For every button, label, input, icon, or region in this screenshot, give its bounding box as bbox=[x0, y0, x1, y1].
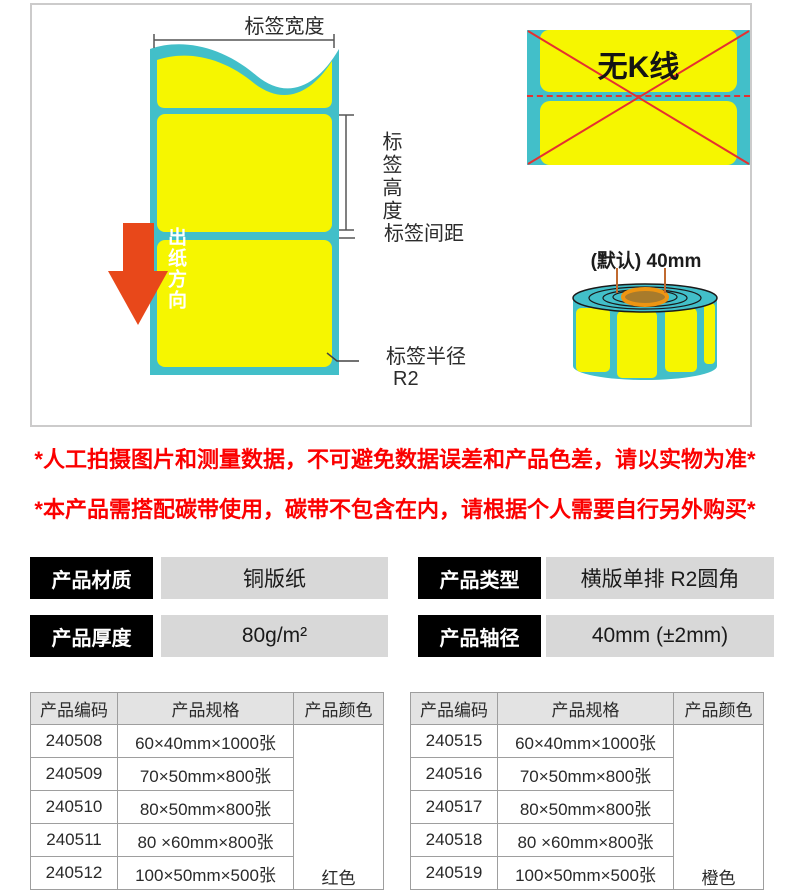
warning-line-1: *人工拍摄图片和测量数据，不可避免数据误差和产品色差，请以实物为准* bbox=[0, 442, 790, 474]
product-color: 红色 bbox=[294, 725, 384, 890]
product-code: 240515 bbox=[411, 725, 498, 758]
product-detail-page: { "diagram": { "label_width": "标签宽度", "l… bbox=[0, 0, 790, 868]
product-code: 240519 bbox=[411, 857, 498, 890]
col-header-spec: 产品规格 bbox=[118, 693, 294, 725]
product-color: 橙色 bbox=[674, 725, 764, 890]
no-k-line-illustration: 无K线 bbox=[527, 30, 750, 165]
product-code: 240512 bbox=[31, 857, 118, 890]
label-width-caption: 标签宽度 bbox=[177, 16, 392, 38]
attr-core-label: 产品轴径 bbox=[418, 615, 541, 657]
product-spec: 80×50mm×800张 bbox=[498, 791, 674, 824]
attr-material-value: 铜版纸 bbox=[161, 557, 388, 599]
label-radius-r2-caption: R2 bbox=[393, 368, 419, 390]
table-row: 240508 60×40mm×1000张 红色 bbox=[31, 725, 384, 758]
col-header-color: 产品颜色 bbox=[294, 693, 384, 725]
product-code: 240509 bbox=[31, 758, 118, 791]
col-header-code: 产品编码 bbox=[411, 693, 498, 725]
product-spec: 70×50mm×800张 bbox=[498, 758, 674, 791]
product-spec: 60×40mm×1000张 bbox=[498, 725, 674, 758]
label-height-caption: 标签高度 bbox=[379, 131, 401, 223]
product-code: 240508 bbox=[31, 725, 118, 758]
product-spec: 100×50mm×500张 bbox=[498, 857, 674, 890]
label-strip-illustration bbox=[147, 32, 362, 382]
attr-core-value: 40mm (±2mm) bbox=[546, 615, 774, 657]
table-header-row: 产品编码 产品规格 产品颜色 bbox=[31, 693, 384, 725]
product-code: 240517 bbox=[411, 791, 498, 824]
warning-line-2: *本产品需搭配碳带使用，碳带不包含在内，请根据个人需要自行另外购买* bbox=[0, 492, 790, 524]
attr-material-label: 产品材质 bbox=[30, 557, 153, 599]
product-spec: 80 ×60mm×800张 bbox=[118, 824, 294, 857]
product-spec: 70×50mm×800张 bbox=[118, 758, 294, 791]
col-header-color: 产品颜色 bbox=[674, 693, 764, 725]
table-row: 240515 60×40mm×1000张 橙色 bbox=[411, 725, 764, 758]
product-table-red: 产品编码 产品规格 产品颜色 240508 60×40mm×1000张 红色 2… bbox=[30, 692, 384, 890]
product-spec: 60×40mm×1000张 bbox=[118, 725, 294, 758]
product-spec: 80 ×60mm×800张 bbox=[498, 824, 674, 857]
product-code: 240510 bbox=[31, 791, 118, 824]
col-header-spec: 产品规格 bbox=[498, 693, 674, 725]
label-roll-illustration bbox=[570, 268, 722, 398]
label-radius-caption: 标签半径 bbox=[386, 346, 466, 368]
attr-type-label: 产品类型 bbox=[418, 557, 541, 599]
table-header-row: 产品编码 产品规格 产品颜色 bbox=[411, 693, 764, 725]
label-gap-caption: 标签间距 bbox=[384, 223, 464, 245]
no-k-line-caption: 无K线 bbox=[527, 42, 750, 86]
product-spec: 100×50mm×500张 bbox=[118, 857, 294, 890]
paper-direction-label: 出纸方向 bbox=[128, 227, 189, 311]
product-code: 240518 bbox=[411, 824, 498, 857]
attr-type-value: 横版单排 R2圆角 bbox=[546, 557, 774, 599]
product-code: 240511 bbox=[31, 824, 118, 857]
product-code: 240516 bbox=[411, 758, 498, 791]
product-spec: 80×50mm×800张 bbox=[118, 791, 294, 824]
attr-thickness-label: 产品厚度 bbox=[30, 615, 153, 657]
paper-direction-arrow: 出纸方向 bbox=[108, 223, 169, 325]
col-header-code: 产品编码 bbox=[31, 693, 118, 725]
product-table-orange: 产品编码 产品规格 产品颜色 240515 60×40mm×1000张 橙色 2… bbox=[410, 692, 764, 890]
label-spec-diagram: 标签宽度 标签高度 标签间距 标签半径 R2 出纸方向 无K线 (默认) 40m… bbox=[30, 3, 752, 427]
attr-thickness-value: 80g/m² bbox=[161, 615, 388, 657]
